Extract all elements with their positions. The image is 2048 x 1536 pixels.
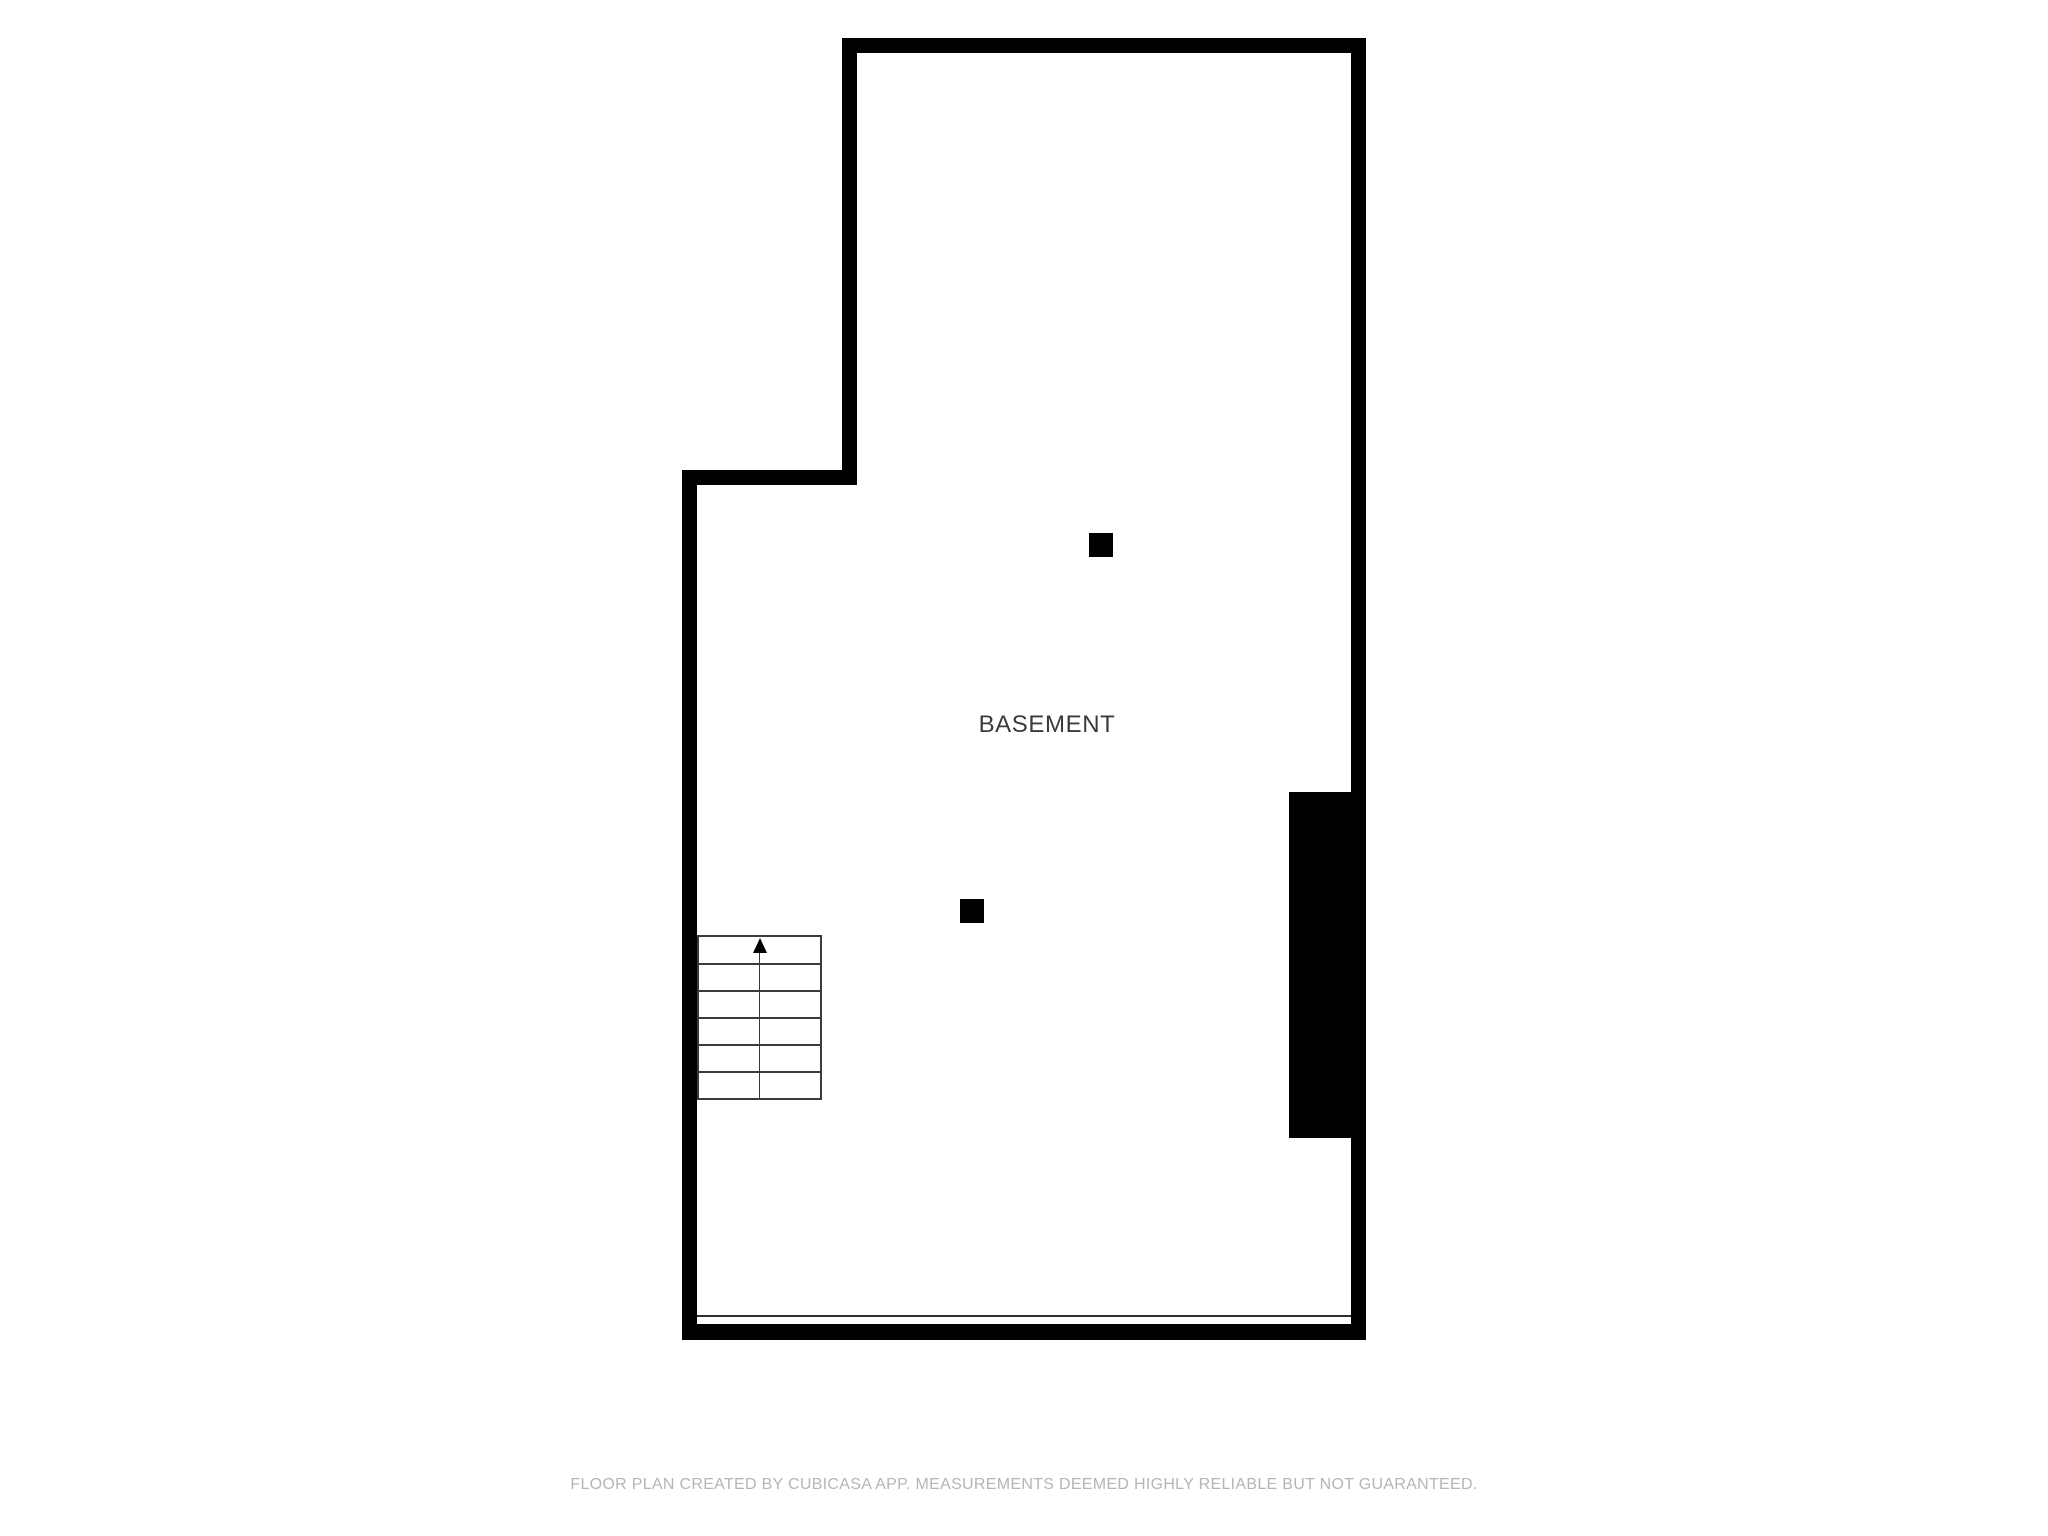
wall-left-upper xyxy=(842,38,857,485)
staircase xyxy=(697,935,822,1100)
wall-bottom xyxy=(682,1324,1366,1340)
room-label: BASEMENT xyxy=(897,711,1197,739)
wall-step xyxy=(682,470,857,485)
footer-disclaimer: FLOOR PLAN CREATED BY CUBICASA APP. MEAS… xyxy=(0,1476,2048,1494)
wall-opening-line xyxy=(697,1315,1351,1317)
wall-top xyxy=(842,38,1366,53)
wall-right xyxy=(1351,38,1366,1340)
stair-direction-arrow-icon xyxy=(753,938,767,953)
structural-column-upper xyxy=(1089,533,1113,557)
stair-direction-arrow-shaft xyxy=(759,952,761,1098)
floor-plan-canvas: BASEMENT FLOOR PLAN CREATED BY CUBICASA … xyxy=(0,0,2048,1536)
chimney-block xyxy=(1289,792,1366,1138)
wall-left-lower xyxy=(682,470,697,1340)
structural-column-lower xyxy=(960,899,984,923)
